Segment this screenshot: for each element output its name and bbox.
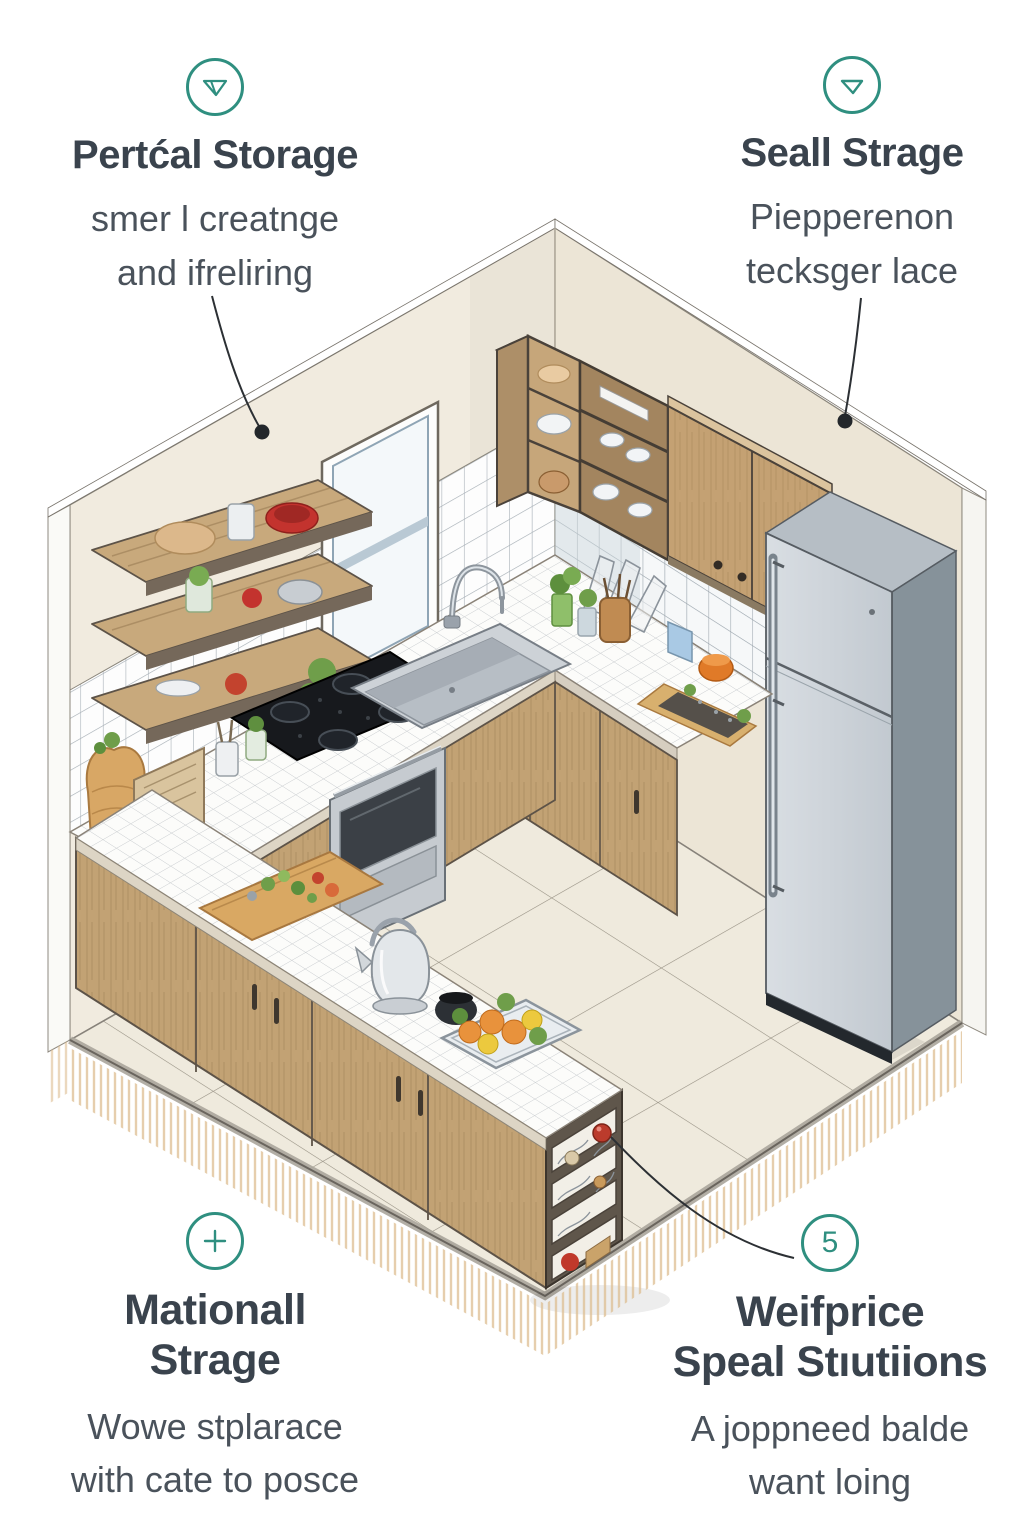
- annotation-subtitle: smer l creatnge and ifreliring: [25, 192, 405, 299]
- red-canister: [225, 673, 247, 695]
- annotation-title: Seall Strage: [662, 130, 1024, 176]
- metal-bowl: [278, 580, 322, 604]
- plus-icon: [186, 1212, 244, 1270]
- utensil-cup: [216, 742, 238, 776]
- number-5-badge-icon: 5: [801, 1214, 859, 1272]
- wall-marker-dot-left: [255, 425, 270, 440]
- cabinet-knob: [714, 561, 723, 570]
- plate-stack: [156, 680, 200, 696]
- triangle-down-icon: [823, 56, 881, 114]
- red-item: [561, 1253, 579, 1271]
- annotation-bottom-right: 5 Weifprice Speal Stıutiions A joppneed …: [640, 1214, 1020, 1508]
- wall-marker-dot-right: [838, 414, 853, 429]
- infographic-canvas: Pertćal Storage smer l creatnge and ifre…: [0, 0, 1024, 1536]
- red-jar: [242, 588, 262, 608]
- leader-line-top-right: [845, 298, 861, 416]
- utensil-crock: [600, 598, 630, 642]
- red-marker-dot: [593, 1124, 611, 1142]
- annotation-bottom-left: Mationall Strage Wowe stplarace with cat…: [25, 1212, 405, 1506]
- annotation-title: Weifprice Speal Stıutiions: [640, 1288, 1020, 1388]
- jar: [228, 504, 254, 540]
- corner-shelf-unit: [497, 336, 580, 512]
- cabinet-handle: [252, 984, 257, 1010]
- annotation-title: Pertćal Storage: [25, 132, 405, 178]
- annotation-title: Mationall Strage: [25, 1286, 405, 1386]
- cabinet-knob: [738, 573, 747, 582]
- funnel-down-icon: [186, 58, 244, 116]
- bread-loaf: [155, 522, 215, 554]
- refrigerator: [766, 492, 956, 1064]
- annotation-top-left: Pertćal Storage smer l creatnge and ifre…: [25, 58, 405, 299]
- badge-number: 5: [822, 1226, 839, 1260]
- annotation-top-right: Seall Strage Piepperenon tecksger lace: [662, 56, 1024, 297]
- annotation-subtitle: Piepperenon tecksger lace: [662, 190, 1024, 297]
- annotation-subtitle: Wowe stplarace with cate to posce: [25, 1400, 405, 1507]
- annotation-subtitle: A joppneed balde want loing: [640, 1402, 1020, 1509]
